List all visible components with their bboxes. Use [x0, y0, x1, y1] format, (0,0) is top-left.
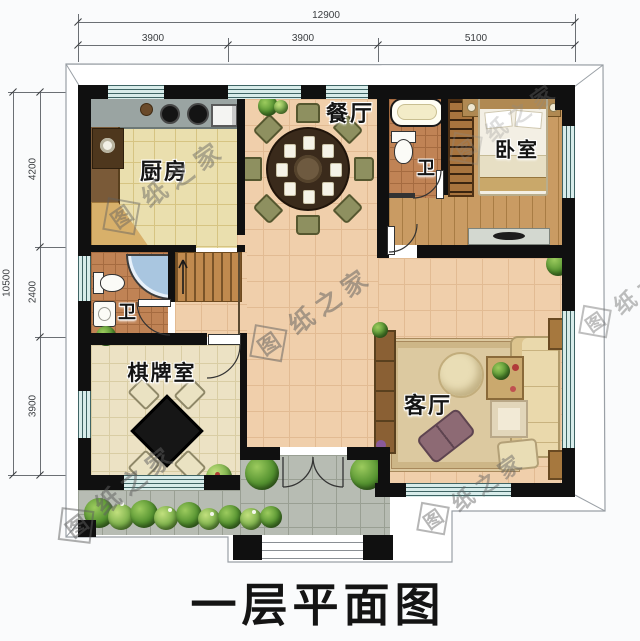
watermark-diamond: 图: [449, 132, 483, 166]
bath-upper-label: 卫: [417, 154, 437, 180]
dim-width-seg2: 3900: [292, 33, 314, 44]
living-room-label: 客厅: [404, 388, 452, 420]
watermark-diamond: 图: [57, 507, 93, 543]
dim-width-seg3: 5100: [465, 33, 487, 44]
watermark-diamond: 图: [416, 502, 450, 536]
watermark-diamond: 图: [249, 324, 287, 362]
floor-plan-canvas: 12900 3900 3900 5100 10500 4200 2400 390…: [0, 0, 640, 641]
page-title: 一层平面图: [191, 569, 446, 635]
bath-lower-label: 卫: [118, 298, 138, 324]
dim-width-overall: 12900: [312, 10, 340, 21]
dim-height-seg1: 4200: [28, 158, 39, 180]
dim-height-seg3: 3900: [28, 395, 39, 417]
dim-height-seg2: 2400: [28, 281, 39, 303]
dining-label: 餐厅: [326, 96, 374, 128]
watermark-diamond: 图: [102, 197, 140, 235]
game-room-label: 棋牌室: [128, 357, 197, 387]
dim-height-overall: 10500: [2, 269, 13, 297]
dim-width-seg1: 3900: [142, 33, 164, 44]
watermark-diamond: 图: [578, 305, 612, 339]
